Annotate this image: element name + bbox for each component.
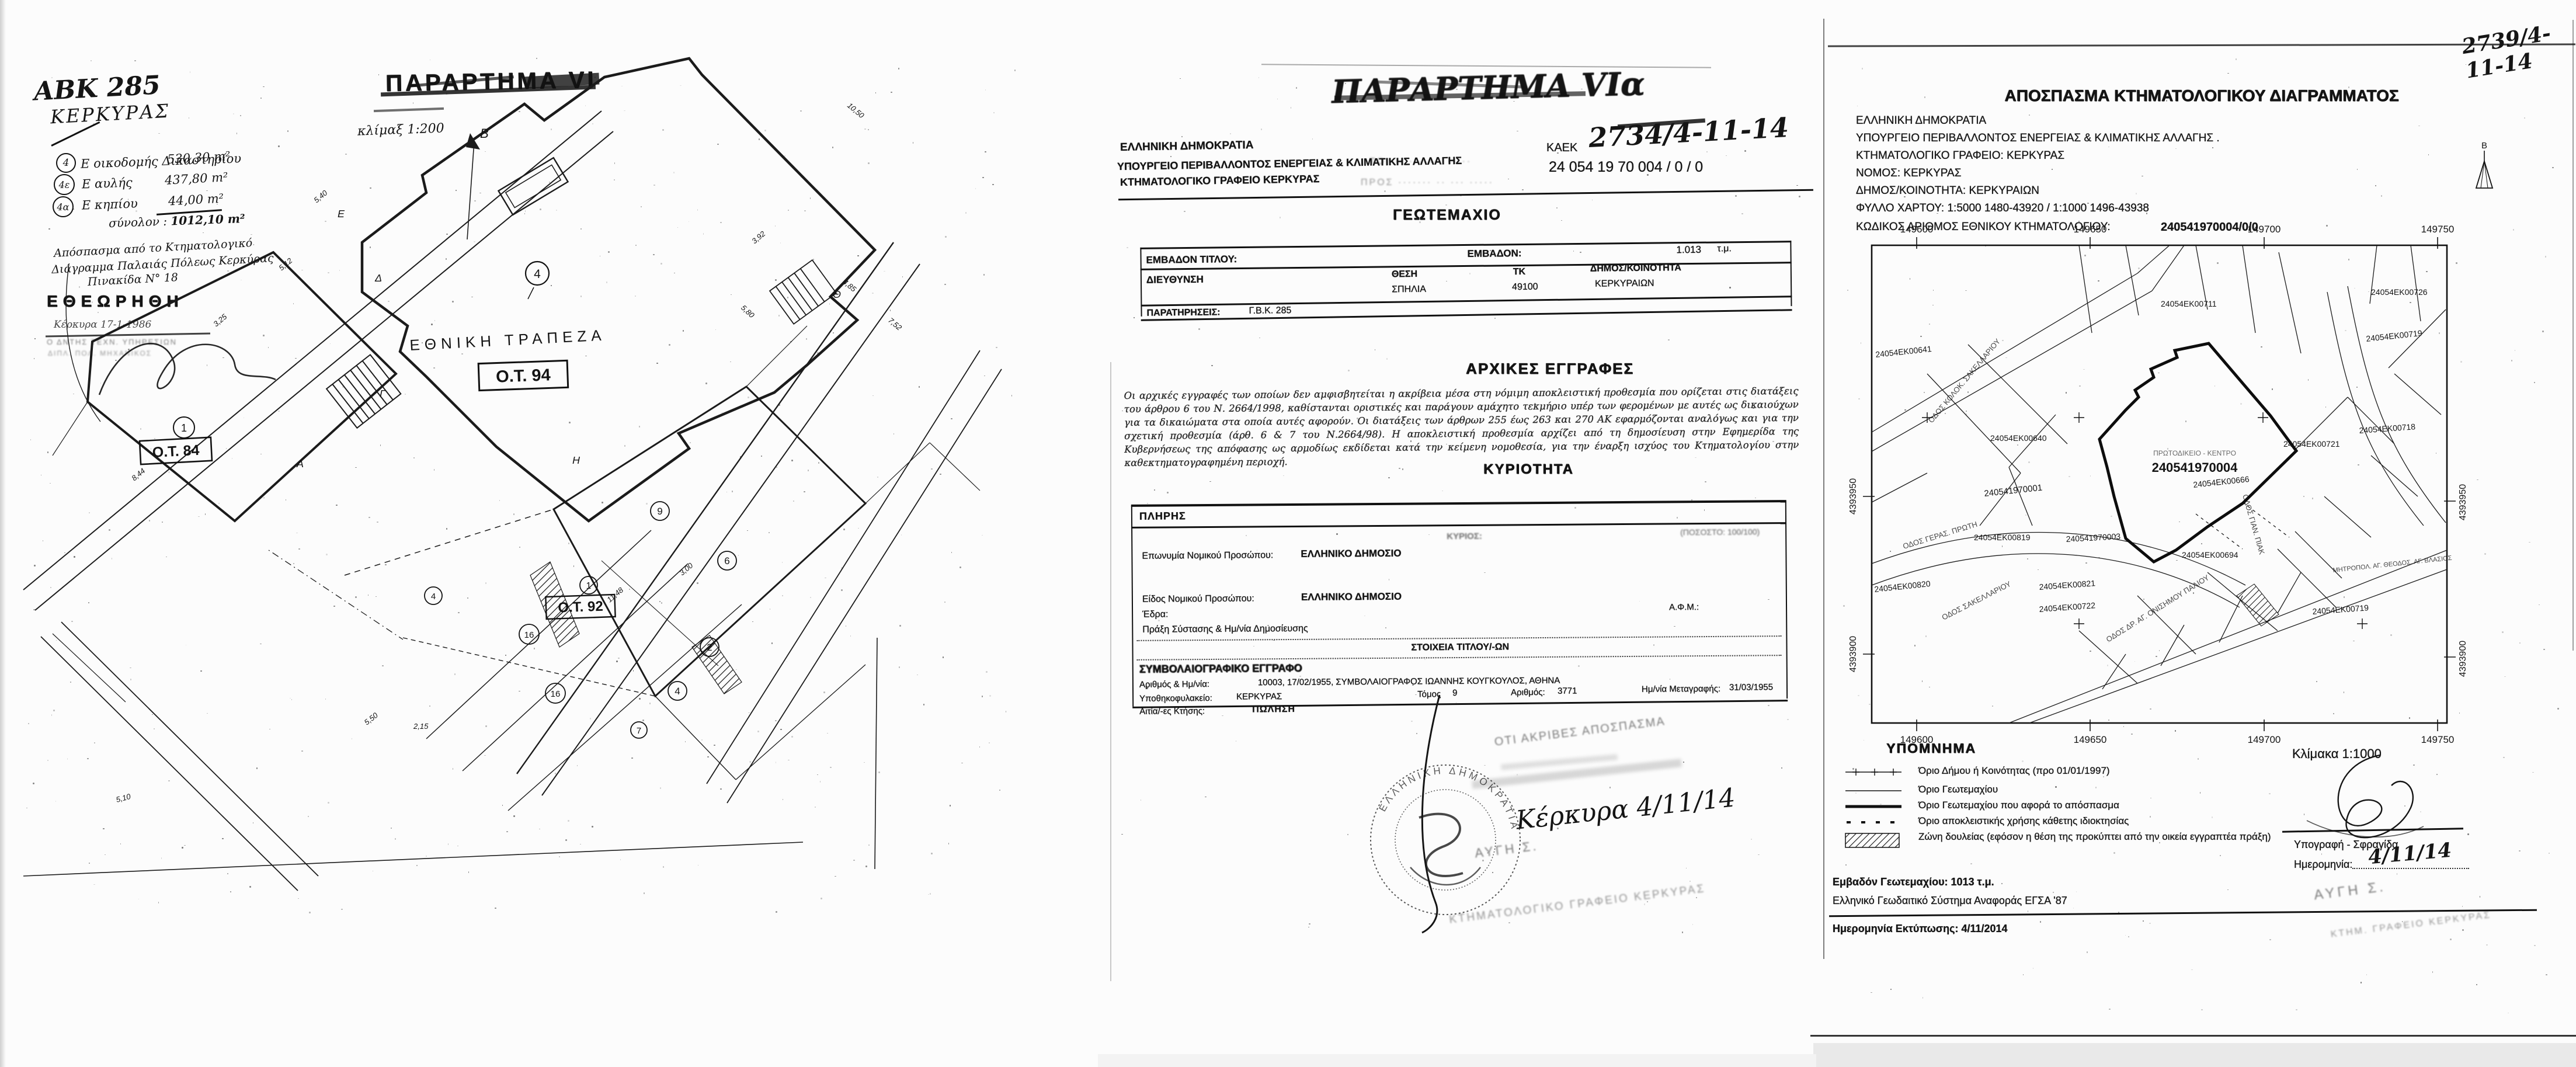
- legend-symbol-municipal-boundary: [1844, 766, 1903, 778]
- dim-13: 5,10: [115, 792, 132, 804]
- mun-label: ΔΗΜΟΣ/ΚΟΙΝΟΤΗΤΑ: [1590, 263, 1681, 274]
- registry-label: Υποθηκοφυλακείο:: [1139, 693, 1212, 704]
- circled-4a: 4: [675, 686, 680, 697]
- doc-number-label: Αριθμός & Ημ/νία:: [1139, 679, 1209, 690]
- parcel-00821: 24054EK00821: [2039, 578, 2096, 592]
- footer-stamp-office: ΚΤΗΜ. ΓΡΑΦΕΙΟ ΚΕΡΚΥΡΑΣ: [2330, 910, 2492, 940]
- founding-act-label: Πράξη Σύστασης & Ημ/νία Δημοσίευσης: [1142, 624, 1308, 635]
- notes-value: Γ.Β.Κ. 285: [1249, 305, 1291, 317]
- agency-line-1: ΕΛΛΗΝΙΚΗ ΔΗΜΟΚΡΑΤΙΑ: [1120, 139, 1254, 154]
- block-84-label: Ο.Τ. 84: [152, 442, 200, 461]
- ownership-table: ΠΛΗΡΗΣ ΚΥΡΙΟΣ: (ΠΟΣΟΣΤΟ: 100/100) Επωνυμ…: [1131, 500, 1788, 708]
- parcel-00666: 24054EK00666: [2193, 474, 2250, 489]
- dim-9: 5,50: [363, 710, 380, 727]
- left-page-survey-plan: ΑΒΚ 285 ΚΕΡΚΥΡΑΣ ΠΑΡΑΡΤΗΜΑ VI κλίμαξ 1:2…: [0, 0, 1075, 1067]
- area-label: ΕΜΒΑΔΟΝ:: [1467, 248, 1521, 260]
- block-92-number: 1: [586, 581, 592, 591]
- hdr-line-3: ΚΤΗΜΑΤΟΛΟΓΙΚΟ ΓΡΑΦΕΙΟ: ΚΕΡΚΥΡΑΣ: [1856, 150, 2064, 162]
- vertex-letter-a: Α: [296, 458, 304, 470]
- circled-16a: 16: [524, 630, 534, 640]
- circled-7: 7: [637, 726, 641, 736]
- parcel-00719b: 24054EK00719: [2312, 603, 2369, 616]
- frame-left: [1823, 19, 1824, 959]
- legal-kind-value: ΕΛΛΗΝΙΚΟ ΔΗΜΟΣΙΟ: [1301, 591, 1402, 603]
- arxikes-paragraph: Οι αρχικές εγγραφές των οποίων δεν αμφισ…: [1124, 384, 1799, 470]
- dim-6: 4,85: [841, 277, 858, 294]
- middle-page-parcel-sheet: ΠΑΡΑΡΤΗΜΑ VIα ΤΟ ··· ······· ····· ΠΡΟΣ …: [1098, 0, 1822, 1067]
- xtick-bot-149650: 149650: [2074, 734, 2107, 745]
- annex-scribble: ΠΑΡΑΡΤΗΜΑ VIα: [1331, 65, 1645, 110]
- street-onisimou: ΟΔΟΣ ΔΡ. ΑΓ. ΟΝΙΣΗΜΟΥ ΠΑΛΙΟΥ: [2105, 573, 2211, 644]
- right-page-diagram-extract: 2739/4-11-14 ΑΠΟΣΠΑΣΜΑ ΚΤΗΜΑΤΟΛΟΓΙΚΟΥ ΔΙ…: [1810, 0, 2576, 1067]
- titles-header: ΣΤΟΙΧΕΙΑ ΤΙΤΛΟΥ/-ΩΝ: [1411, 642, 1509, 653]
- datum-line: Ελληνικό Γεωδαιτικό Σύστημα Αναφοράς ΕΓΣ…: [1833, 895, 2067, 907]
- dim-3: 8,44: [130, 467, 147, 483]
- parcel-area-line: Εμβαδόν Γεωτεμαχίου: 1013 τ.μ.: [1833, 876, 1994, 888]
- parcel-00711: 24054EK00711: [2161, 299, 2217, 308]
- legend-symbol-exclusive-use: [1844, 816, 1903, 828]
- hdr-line-1: ΕΛΛΗΝΙΚΗ ΔΗΜΟΚΡΑΤΙΑ: [1856, 114, 1986, 127]
- official-signature: [2272, 750, 2447, 853]
- block-84-number: 1: [181, 422, 187, 434]
- street-sakellariou-lower: ΟΔΟΣ ΣΑΚΕΛΛΑΡΙΟΥ: [1941, 579, 2013, 622]
- agency-line-3: ΚΤΗΜΑΤΟΛΟΓΙΚΟ ΓΡΑΦΕΙΟ ΚΕΡΚΥΡΑΣ: [1120, 173, 1320, 189]
- footer-stamp-name: ΑΥΓΗ Σ.: [2313, 879, 2387, 904]
- frame-bottom: [1810, 1035, 2576, 1037]
- section-kyriotita: ΚΥΡΙΟΤΗΤΑ: [1483, 461, 1574, 478]
- parcel-00726: 24054EK00726: [2371, 287, 2428, 297]
- circled-4b: 4: [431, 592, 436, 602]
- transcription-label: Ημ/νία Μεταγραφής:: [1642, 684, 1720, 694]
- kaek-handwritten: 2734/4-11-14: [1588, 112, 1789, 154]
- circled-16b: 16: [551, 689, 561, 699]
- notes-label: ΠΑΡΑΤΗΡΗΣΕΙΣ:: [1146, 307, 1220, 318]
- hdr-line-5: ΔΗΜΟΣ/ΚΟΙΝΟΤΗΤΑ: ΚΕΡΚΥΡΑΙΩΝ: [1856, 185, 2039, 197]
- parcel-00819: 24054EK00819: [1974, 533, 2031, 542]
- area-value: 1.013: [1676, 244, 1701, 256]
- focus-parcel-name: ΠΡΩΤΟΔΙΚΕΙΟ - ΚΕΝΤΡΟ: [2153, 449, 2236, 457]
- north-symbol-label: Β: [2481, 141, 2487, 151]
- focus-parcel-code: 240541970004: [2152, 460, 2238, 475]
- bank-name-label: ΕΘΝΙΚΗ ΤΡΑΠΕΖΑ: [409, 326, 607, 354]
- parcel-00721: 24054EK00721: [2283, 439, 2340, 449]
- parcel-00641: 24054EK00641: [1875, 344, 1932, 359]
- dim-8: 7,52: [887, 316, 904, 332]
- diagram-title: ΑΠΟΣΠΑΣΜΑ ΚΤΗΜΑΤΟΛΟΓΙΚΟΥ ΔΙΑΓΡΑΜΜΑΤΟΣ: [1980, 86, 2424, 105]
- block-94-label: Ο.Τ. 94: [496, 366, 551, 386]
- doc-kind: ΣΥΜΒΟΛΑΙΟΓΡΑΦΙΚΟ ΕΓΓΡΑΦΟ: [1139, 662, 1302, 676]
- parcel-970003: 240541970003: [2066, 531, 2120, 544]
- transcription-value: 31/03/1955: [1729, 682, 1773, 693]
- ownership-type: ΠΛΗΡΗΣ: [1139, 510, 1186, 523]
- legend-title: ΥΠΟΜΝΗΜΑ: [1886, 741, 1976, 756]
- hdr-line-2: ΥΠΟΥΡΓΕΙΟ ΠΕΡΙΒΑΛΛΟΝΤΟΣ ΕΝΕΡΓΕΙΑΣ & ΚΛΙΜ…: [1856, 132, 2220, 145]
- print-date-line: Ημερομηνία Εκτύπωσης: 4/11/2014: [1833, 923, 2008, 935]
- survey-map-drawing: Β ΕΘΝΙΚΗ ΤΡΑΠΕΖΑ Ο.Τ. 94 4 1 Ο.Τ. 84 1 Ο…: [18, 47, 1034, 958]
- legal-name-label: Επωνυμία Νομικού Προσώπου:: [1142, 550, 1273, 562]
- legend-symbol-servitude-zone: [1844, 832, 1903, 849]
- dim-12: 3,00: [677, 561, 695, 577]
- registry-value: ΚΕΡΚΥΡΑΣ: [1236, 691, 1282, 702]
- page-edge-shadow: [1110, 362, 1111, 981]
- hdr-line-6: ΦΥΛΛΟ ΧΑΡΤΟΥ: 1:5000 1480-43920 / 1:1000…: [1856, 202, 2149, 215]
- pen-stroke: [1390, 692, 1460, 937]
- ownership-percent: (ΠΟΣΟΣΤΟ: 100/100): [1680, 527, 1760, 537]
- xtick-top-149700: 149700: [2248, 224, 2281, 235]
- kaek-label: ΚΑΕΚ: [1546, 141, 1577, 155]
- mun-value: ΚΕΡΚΥΡΑΙΩΝ: [1595, 279, 1654, 290]
- vertex-letter-e: Ε: [338, 208, 345, 220]
- xtick-bot-149700: 149700: [2248, 734, 2281, 745]
- thesi-value: ΣΠΗΛΙΑ: [1392, 284, 1426, 296]
- vertex-letter-g: Γ: [380, 388, 386, 399]
- dim-4: 5,80: [739, 303, 756, 320]
- street-geras-proti: ΟΔΟΣ ΓΕΡΑΣ. ΠΡΩΤΗ: [1901, 520, 1978, 551]
- section-geotemaxio: ΓΕΩΤΕΜΑΧΙΟ: [1393, 207, 1501, 224]
- footer-rule: [1829, 909, 2537, 917]
- legend-item-2: Όριο Γεωτεμαχίου: [1918, 784, 1998, 795]
- xtick-top-149600: 149600: [1900, 224, 1934, 235]
- handwritten-protocol: 2739/4-11-14: [2460, 17, 2576, 83]
- ytick-left-4393900: 4393900: [1848, 636, 1858, 672]
- agency-underline: [1118, 189, 1813, 201]
- date-label: Ημερομηνία:: [2294, 859, 2352, 871]
- tk-label: ΤΚ: [1513, 267, 1526, 277]
- scanned-cadastral-dossier: ΑΒΚ 285 ΚΕΡΚΥΡΑΣ ΠΑΡΑΡΤΗΜΑ VI κλίμαξ 1:2…: [0, 0, 2576, 1067]
- xtick-bot-149750: 149750: [2421, 734, 2455, 745]
- legend-item-4: Όριο αποκλειστικής χρήσης κάθετης ιδιοκτ…: [1918, 815, 2129, 827]
- vertex-letter-h: Η: [572, 454, 580, 466]
- parcel-00718: 24054EK00718: [2359, 422, 2416, 435]
- legend-item-3: Όριο Γεωτεμαχίου που αφορά το απόσπασμα: [1918, 800, 2119, 811]
- certification-line: ΟΤΙ ΑΚΡΙΒΕΣ ΑΠΟΣΠΑΣΜΑ: [1494, 715, 1666, 749]
- parcel-00640: 24054EK00640: [1990, 433, 2047, 443]
- tk-value: 49100: [1512, 282, 1538, 293]
- north-label: Β: [480, 126, 489, 141]
- area-unit: τ.μ.: [1717, 244, 1732, 254]
- xtick-top-149650: 149650: [2074, 224, 2107, 235]
- legal-kind-label: Είδος Νομικού Προσώπου:: [1142, 593, 1254, 604]
- circled-6: 6: [724, 555, 729, 566]
- xtick-top-149750: 149750: [2421, 224, 2455, 235]
- block-94-number: 4: [534, 267, 541, 281]
- legend-symbol-parcel-boundary: [1844, 785, 1903, 797]
- doc-number-value: 10003, 17/02/1955, ΣΥΜΒΟΛΑΙΟΓΡΑΦΟΣ ΙΩΑΝΝ…: [1258, 676, 1560, 688]
- legend-item-5: Ζώνη δουλείας (εφόσον η θέση της προκύπτ…: [1918, 830, 2280, 843]
- vertex-letter-th: Θ: [833, 289, 841, 300]
- ytick-left-4393950: 4393950: [1848, 478, 1858, 515]
- legend-item-1: Όριο Δήμου ή Κοινότητας (προ 01/01/1997): [1918, 765, 2110, 777]
- seat-label: Έδρα:: [1142, 609, 1168, 620]
- street-gian-piak: ΟΔΟΣ ΓΙΑΝ. ΠΙΑΚ: [2241, 493, 2266, 556]
- area-title-label: ΕΜΒΑΔΟΝ ΤΙΤΛΟΥ:: [1146, 253, 1237, 266]
- faint-pros-line: ΠΡΟΣ ······· ·· ··· ·····: [1361, 178, 1494, 188]
- north-symbol: Β: [2469, 139, 2499, 195]
- legend-symbol-focus-boundary: [1844, 801, 1903, 812]
- dim-10: 2,15: [413, 722, 429, 731]
- dim-7: 3,92: [750, 229, 767, 245]
- cadastral-map: 149600 149650 149700 149750 149600 14965…: [1834, 222, 2575, 748]
- circled-2: 2: [707, 642, 712, 653]
- address-label: ΔΙΕΥΘΥΝΣΗ: [1146, 274, 1204, 286]
- kaek-value: 24 054 19 70 004 / 0 / 0: [1549, 159, 1703, 176]
- section-arxikes: ΑΡΧΙΚΕΣ ΕΓΓΡΑΦΕΣ: [1466, 360, 1634, 378]
- ytick-right-4393950: 4393950: [2458, 484, 2468, 520]
- legal-name-value: ΕΛΛΗΝΙΚΟ ΔΗΜΟΣΙΟ: [1301, 548, 1401, 560]
- street-sakellariou-upper: ΟΔΟΣ ΚΟΛΟΚ. ΣΑΚΕΛΛΑΡΙΟΥ: [1927, 337, 2003, 425]
- dim-0: 5,40: [312, 188, 329, 204]
- afm-label: Α.Φ.Μ.:: [1669, 602, 1699, 612]
- agency-line-2: ΥΠΟΥΡΓΕΙΟ ΠΕΡΙΒΑΛΛΟΝΤΟΣ ΕΝΕΡΓΕΙΑΣ & ΚΛΙΜ…: [1117, 155, 1462, 173]
- certification-hand-date: Κέρκυρα 4/11/14: [1514, 783, 1736, 835]
- area-mitropol: ΜΗΤΡΟΠΟΛ. ΑΓ. ΘΕΟΔΟΣ. ΑΓ. ΒΛΑΣΙΟΣ: [2332, 555, 2452, 574]
- owner-label: ΚΥΡΙΟΣ:: [1447, 531, 1482, 541]
- number2-label: Αριθμός:: [1511, 687, 1545, 697]
- dim-5: 10,50: [846, 101, 866, 120]
- dim-2: 3,25: [211, 312, 229, 328]
- number2-value: 3771: [1558, 686, 1577, 696]
- vertex-letter-d: Δ: [374, 272, 382, 284]
- hdr-line-4: ΝΟΜΟΣ: ΚΕΡΚΥΡΑΣ: [1856, 167, 1961, 180]
- circled-9: 9: [657, 506, 662, 517]
- parcel-00722: 24054EK00722: [2039, 600, 2096, 614]
- parcel-table: ΕΜΒΑΔΟΝ ΤΙΤΛΟΥ: ΕΜΒΑΔΟΝ: 1.013 τ.μ. ΔΙΕΥ…: [1140, 241, 1792, 319]
- block-92-label: Ο.Τ. 92: [558, 599, 603, 616]
- thesi-label: ΘΕΣΗ: [1392, 269, 1417, 280]
- parcel-00694: 24054EK00694: [2182, 550, 2238, 559]
- parcel-970001: 240541970001: [1984, 483, 2043, 499]
- parcel-00719a: 24054EK00719: [2366, 328, 2423, 343]
- ytick-right-4393900: 4393900: [2458, 641, 2468, 677]
